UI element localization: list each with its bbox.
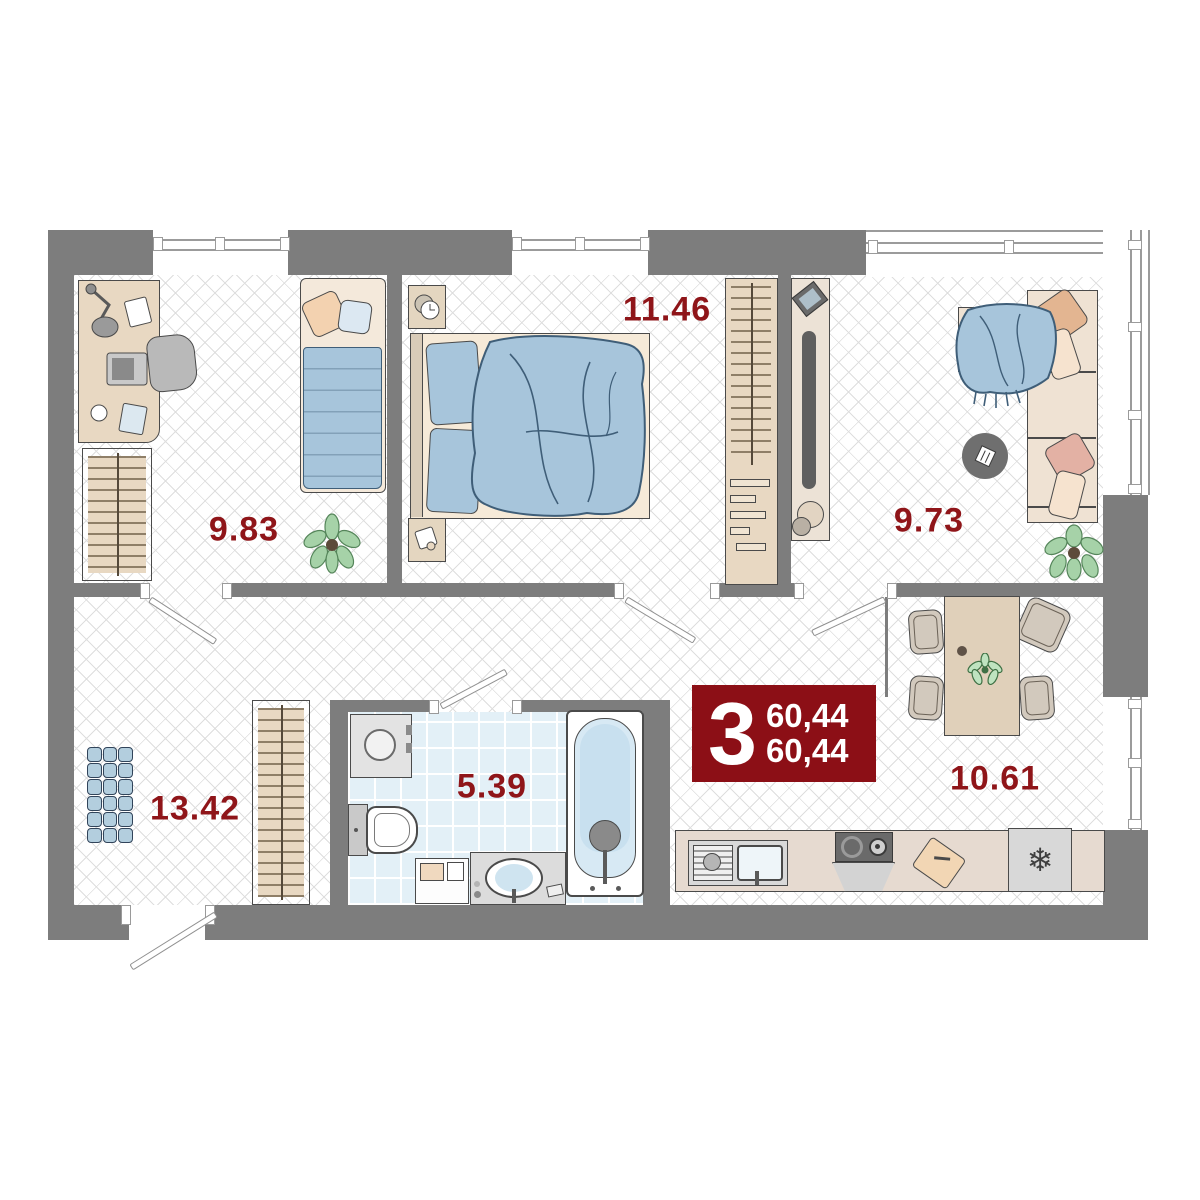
bed-single <box>300 278 386 493</box>
wall-bedrooms-divider <box>387 275 402 583</box>
coffee-table <box>962 433 1008 479</box>
plaid-blanket <box>950 300 1062 420</box>
bed-double <box>410 333 650 519</box>
speaker-icon <box>792 281 829 317</box>
door-jamb <box>222 583 232 599</box>
faucet-icon <box>755 871 759 885</box>
entry-bench <box>87 747 133 843</box>
sink-basin <box>737 845 783 881</box>
wardrobe-shelf <box>736 543 766 551</box>
toilet-tank <box>348 804 368 856</box>
wardrobe-rod <box>751 283 753 465</box>
dining-table <box>944 596 1020 736</box>
fridge-snowflake-icon: ❄ <box>1027 841 1054 879</box>
door-jamb <box>429 700 439 714</box>
dining-chair <box>908 675 945 721</box>
wall-top-3 <box>648 230 866 275</box>
kitchen-sink-unit <box>688 840 788 886</box>
room-area-label-kitchen: 10.61 <box>950 760 1040 799</box>
wardrobe-shelf <box>730 479 770 487</box>
wardrobe-bedroom-2 <box>725 278 778 585</box>
wall-hall-1 <box>74 583 148 597</box>
alarm-clock-icon <box>409 286 444 327</box>
room-area-label-living-room: 9.73 <box>894 502 964 541</box>
door-jamb <box>512 700 522 714</box>
pillow-white <box>337 299 373 335</box>
wardrobe-rod <box>117 453 119 576</box>
wardrobe-bedroom-1 <box>82 448 152 581</box>
wardrobe-hanger-section <box>726 279 776 469</box>
room-area-label-bathroom: 5.39 <box>457 768 527 807</box>
stove <box>835 832 893 862</box>
wardrobe-shelf <box>730 495 756 503</box>
door-jamb <box>140 583 150 599</box>
door-jamb <box>710 583 720 599</box>
tv-icon <box>802 331 816 489</box>
nightstand-bottom <box>408 518 446 562</box>
plant-icon <box>303 513 361 575</box>
room-area-label-bedroom-1: 9.83 <box>209 511 279 550</box>
apartment-info-badge: 3 60,44 60,44 <box>692 685 876 782</box>
plant-icon <box>1043 524 1105 582</box>
sink-vanity <box>470 852 566 905</box>
window-bedroom-2 <box>512 230 648 275</box>
wall-bathroom-right <box>643 700 670 905</box>
wardrobe-shelf <box>730 527 750 535</box>
total-area: 60,44 <box>766 699 849 734</box>
washer-drum <box>364 729 396 761</box>
wardrobe-rod <box>281 705 283 900</box>
blanket-single <box>303 347 382 489</box>
dining-chair <box>1019 675 1056 721</box>
window-kitchen <box>1103 697 1148 830</box>
room-area-label-bedroom-2: 11.46 <box>623 291 711 330</box>
headboard <box>411 334 423 517</box>
room-area-label-hallway: 13.42 <box>150 790 240 829</box>
wall-hall-3 <box>718 583 802 597</box>
wall-tv-nook <box>778 275 791 583</box>
wall-right-bottom <box>1103 830 1148 940</box>
room-count: 3 <box>708 694 757 773</box>
kitchen-zone-line <box>885 597 888 697</box>
panoramic-window-right <box>1103 230 1150 495</box>
tv-console <box>791 278 830 541</box>
blanket-double <box>466 332 650 521</box>
wardrobe-hallway <box>252 700 310 905</box>
bath-cabinet <box>415 858 469 904</box>
door-jamb <box>887 583 897 599</box>
wall-top-2 <box>288 230 512 275</box>
bathtub <box>566 710 644 897</box>
entrance-opening <box>129 905 205 940</box>
door-jamb <box>121 905 131 925</box>
wall-right-mid <box>1103 495 1148 697</box>
wall-left <box>48 230 74 922</box>
toilet <box>348 804 420 856</box>
fridge: ❄ <box>1008 828 1072 892</box>
living-area: 60,44 <box>766 734 849 769</box>
wall-hall-2 <box>222 583 622 597</box>
desk-chair <box>145 333 199 394</box>
dining-chair <box>908 609 945 655</box>
floor-plan: 9.83 11.46 <box>0 0 1200 1200</box>
door-jamb <box>794 583 804 599</box>
stool-icon-2 <box>792 517 811 536</box>
door-jamb <box>614 583 624 599</box>
washing-machine <box>350 714 412 778</box>
bathtub-drain <box>589 820 621 852</box>
window-bedroom-1 <box>153 230 288 275</box>
wall-hall-4 <box>887 583 1103 597</box>
decor-icon <box>962 433 1008 479</box>
nightstand-top <box>408 285 446 329</box>
cup-icon <box>409 519 444 560</box>
table-plant-icon <box>967 653 1003 685</box>
wall-bathroom-left <box>330 700 348 905</box>
wardrobe-shelf <box>730 511 766 519</box>
wall-top-1 <box>48 230 153 275</box>
